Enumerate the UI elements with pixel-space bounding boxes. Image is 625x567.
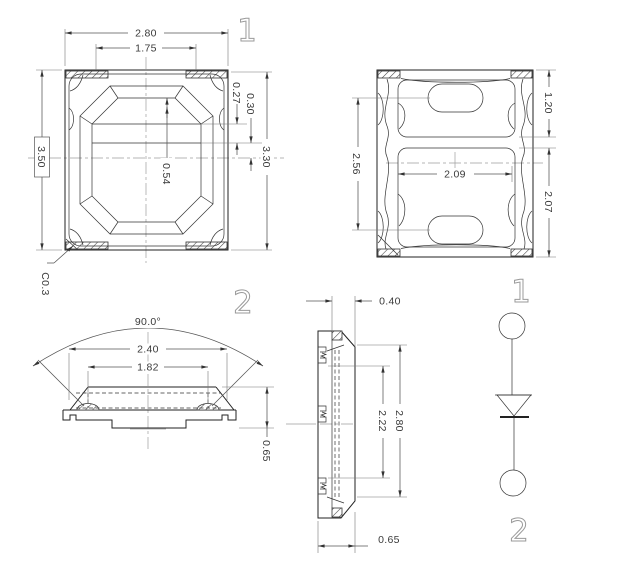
bottom-view-dimensions: 2.56 2.09 1.20 2.07 bbox=[350, 70, 556, 257]
dim-step-b: 0.27 bbox=[230, 82, 242, 104]
anode-terminal bbox=[499, 313, 525, 339]
diode-symbol bbox=[495, 395, 532, 417]
dim-overall-width: 2.80 bbox=[135, 28, 157, 40]
pin-1-label: 1 bbox=[511, 274, 531, 310]
bottom-view: 2.56 2.09 1.20 2.07 bbox=[350, 70, 556, 257]
view-marker-2: 2 bbox=[233, 285, 253, 321]
view-marker-1: 1 bbox=[237, 13, 257, 49]
anode-pad bbox=[398, 80, 515, 137]
dim-lens-inner: 1.82 bbox=[137, 362, 159, 374]
dim-slot-pitch: 2.56 bbox=[350, 153, 362, 175]
top-view-dimensions: 2.80 1.75 3.50 3.30 bbox=[35, 27, 274, 296]
pin-2-label: 2 bbox=[509, 513, 529, 549]
side-view-body bbox=[318, 331, 355, 518]
front-view-dimensions: 90.0° 2.40 1.82 0.65 bbox=[33, 315, 274, 462]
dim-right-height: 3.30 bbox=[260, 146, 272, 168]
dim-top-pad: 1.20 bbox=[542, 92, 554, 114]
dim-body-length: 2.80 bbox=[393, 410, 405, 432]
top-view: 2.80 1.75 3.50 3.30 bbox=[28, 13, 284, 296]
led-package-drawing: 2.80 1.75 3.50 3.30 bbox=[0, 0, 625, 567]
dim-step-a: 0.30 bbox=[244, 93, 256, 115]
bottom-slot bbox=[428, 216, 483, 244]
top-view-body bbox=[65, 70, 228, 250]
front-view: 90.0° 2.40 1.82 0.65 2 bbox=[33, 285, 274, 462]
dim-lens-outer: 2.40 bbox=[137, 344, 159, 356]
top-slot bbox=[428, 84, 483, 112]
side-view: 0.40 2.80 2.22 0.65 bbox=[286, 296, 407, 554]
front-view-body bbox=[63, 387, 236, 428]
top-view-centerlines bbox=[28, 57, 284, 263]
dim-front-thickness: 0.65 bbox=[260, 440, 272, 462]
dim-lens-height: 0.40 bbox=[379, 296, 401, 308]
dim-main-pad: 2.07 bbox=[542, 191, 554, 213]
dim-view-angle: 90.0° bbox=[135, 316, 161, 328]
dim-die-offset: 0.54 bbox=[160, 163, 172, 185]
cathode-terminal bbox=[500, 470, 526, 496]
dim-opening-width: 1.75 bbox=[135, 43, 157, 55]
circuit-diagram: 1 2 bbox=[495, 274, 532, 549]
dim-side-thickness: 0.65 bbox=[378, 534, 400, 546]
dim-cavity-length: 2.22 bbox=[376, 410, 388, 432]
dim-pad-width: 2.09 bbox=[444, 169, 466, 181]
chamfer-note: C0.3 bbox=[39, 272, 51, 295]
dim-overall-height: 3.50 bbox=[35, 146, 47, 168]
